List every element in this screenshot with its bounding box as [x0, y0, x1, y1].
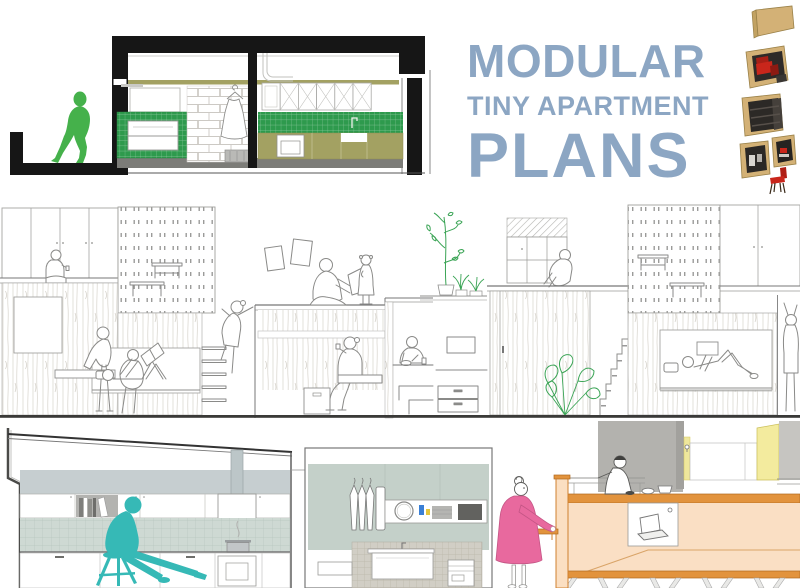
- module-desk-boxes-and-chair: [740, 135, 796, 194]
- modular-interior-long-section: [0, 203, 800, 419]
- upper-cabinets: [262, 83, 371, 110]
- ceiling-band: [20, 470, 290, 494]
- monitor-and-drawers: [436, 337, 487, 412]
- walking-figure: [51, 92, 90, 164]
- towel-stack: [432, 506, 452, 519]
- white-wall: [690, 443, 757, 480]
- module-stack-illustration: [728, 2, 800, 198]
- floor-heater-box: [225, 150, 250, 162]
- tall-plant-pot: [438, 285, 454, 295]
- laptop-niche: [628, 503, 678, 546]
- yellow-strip: [684, 437, 690, 480]
- book-shelf-niche: [76, 495, 118, 517]
- yellow-panel: [757, 424, 779, 480]
- wardrobe: [487, 286, 630, 415]
- base-cabinets: [258, 133, 403, 159]
- range-hood: [218, 494, 256, 521]
- right-closet: [720, 205, 800, 291]
- backsplash-tiles: [20, 518, 290, 552]
- stair-drawers: [600, 339, 628, 415]
- right-gray-wall: [779, 421, 800, 480]
- book-cover: MODULAR TINY APARTMENT PLANS: [0, 0, 800, 588]
- loft-bottom-rail: [560, 571, 800, 578]
- kitchen-run: [258, 53, 403, 159]
- washer-drawers: [448, 560, 474, 586]
- module-shelf-box: [742, 94, 783, 136]
- bathroom-section: [305, 448, 492, 588]
- round-mirror: [395, 502, 413, 520]
- standing-girl-figure: [358, 255, 374, 304]
- bottom-sections-illustration: [0, 418, 800, 588]
- reaching-figure: [778, 295, 800, 415]
- plant-shelf: [420, 212, 487, 300]
- apartment-cross-section-illustration: [0, 0, 445, 200]
- nook-eating-figure: [393, 337, 433, 415]
- reading-man-figure: [310, 259, 365, 306]
- duct: [231, 450, 243, 494]
- potted-plants: [453, 274, 484, 296]
- brick-wall: [187, 85, 250, 162]
- pegboard-left: [118, 207, 215, 313]
- loft-legs: [565, 578, 785, 588]
- module-panel: [752, 6, 794, 38]
- module-sofa-box: [746, 46, 788, 88]
- vanity-niche: [385, 500, 487, 523]
- yellow-soap: [426, 509, 430, 515]
- tall-plant: [427, 212, 464, 285]
- red-chair: [770, 167, 787, 194]
- attic-kitchen-section: [8, 428, 305, 588]
- blue-bottle: [419, 505, 424, 515]
- loft-section: [528, 421, 800, 588]
- low-bench: [318, 562, 352, 575]
- interior-wall: [248, 53, 257, 168]
- posters: [265, 239, 313, 271]
- loft-deck: [566, 494, 800, 503]
- tile-backsplash: [258, 112, 403, 133]
- loft-face: [568, 503, 800, 571]
- pegboard-right: [628, 205, 720, 313]
- dark-basket: [458, 504, 482, 520]
